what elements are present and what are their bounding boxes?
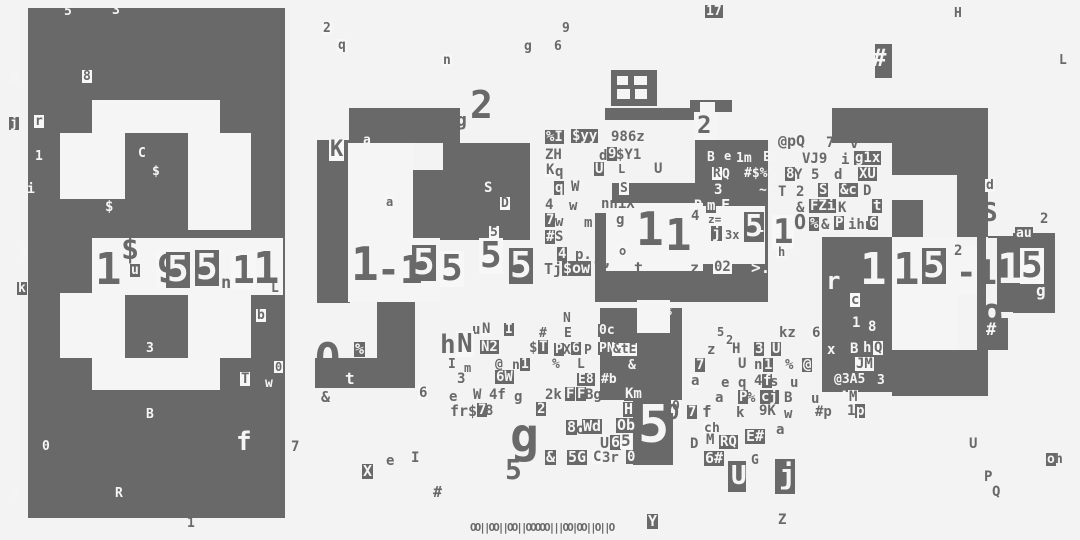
glyph: $Y1 xyxy=(616,148,641,162)
glyph: 1 xyxy=(636,206,664,252)
glyph: 4, xyxy=(594,254,612,269)
glyph: 9 xyxy=(562,22,570,35)
glyph: $ xyxy=(105,200,113,214)
glyph: 6 xyxy=(571,342,581,355)
glitch-art-canvas: 532qng9617#HLB8jr1i8kuC$$3b0TwB0fR711$u9… xyxy=(0,0,1080,540)
glyph: #$%5 xyxy=(744,167,775,180)
gray-block xyxy=(377,302,415,358)
glyph: L xyxy=(1059,54,1067,67)
glyph: % xyxy=(664,305,672,318)
glyph: e xyxy=(721,376,729,390)
glyph: K xyxy=(838,201,846,215)
glyph: t xyxy=(634,261,643,276)
glyph: U xyxy=(771,342,781,356)
glyph: O xyxy=(794,212,806,232)
glyph: %I xyxy=(545,130,564,144)
glyph: U xyxy=(600,436,609,451)
glyph: H xyxy=(623,402,634,417)
glyph: Q xyxy=(873,341,883,355)
window-icon-pane xyxy=(634,76,647,85)
glyph: q xyxy=(555,165,563,179)
glyph: 6 xyxy=(418,386,428,400)
glyph: P xyxy=(984,470,992,484)
glyph: W xyxy=(473,388,481,402)
glyph: 2 xyxy=(1040,212,1048,226)
gray-block xyxy=(317,140,350,303)
glyph: r xyxy=(826,269,840,293)
glyph: RQ xyxy=(719,435,738,449)
glyph: U xyxy=(969,437,977,451)
glyph: d xyxy=(985,179,995,192)
white-cutout xyxy=(60,133,125,199)
white-cutout xyxy=(348,143,413,238)
glyph: a xyxy=(385,196,394,208)
glyph: 5 xyxy=(479,238,503,274)
glyph: g xyxy=(514,390,522,404)
glyph: k xyxy=(17,282,27,295)
glyph: Q xyxy=(722,168,730,181)
glyph: B xyxy=(11,72,19,85)
glyph: B xyxy=(146,408,154,421)
glyph: u xyxy=(11,487,19,500)
glyph: I xyxy=(448,358,456,371)
glyph: N xyxy=(456,331,474,357)
glyph: 1 xyxy=(860,248,887,292)
glyph: 02 xyxy=(713,260,732,274)
glyph: I xyxy=(504,323,514,336)
glyph: % xyxy=(354,342,365,357)
glyph: 1 xyxy=(763,358,773,372)
glyph: R xyxy=(115,487,123,500)
glyph: au xyxy=(1015,227,1033,240)
glyph: w xyxy=(265,377,273,390)
glyph: 3r xyxy=(602,451,619,465)
glyph: g xyxy=(615,213,625,227)
glyph: 7 xyxy=(826,136,834,150)
window-icon-pane xyxy=(617,76,628,85)
glyph: E xyxy=(763,151,771,164)
glyph: 5 xyxy=(412,245,436,281)
glyph: m xyxy=(584,216,592,230)
glyph: 8 xyxy=(485,404,493,418)
glyph: T xyxy=(240,372,250,386)
glyph: 2 xyxy=(470,86,493,124)
glyph: S xyxy=(555,230,563,244)
glyph: H xyxy=(732,342,740,356)
glyph: O xyxy=(667,402,679,422)
barcode: OO||OO||OO||OOOOO|||OO|OO||O||O xyxy=(470,522,613,533)
white-cutout xyxy=(188,133,251,230)
glyph: 5 xyxy=(922,248,946,284)
glyph: $ xyxy=(152,165,160,178)
glyph: nniX xyxy=(601,197,635,211)
glyph: F xyxy=(565,387,575,401)
glyph: c xyxy=(850,293,860,307)
glyph: R xyxy=(694,199,702,213)
glyph: ZH xyxy=(545,148,562,162)
glyph: 1 xyxy=(852,316,860,330)
glyph: S xyxy=(982,200,998,226)
glyph: 3 xyxy=(457,372,465,386)
glyph: T xyxy=(778,185,786,199)
glyph: & xyxy=(545,450,556,465)
glyph: 2 xyxy=(322,22,332,35)
glyph: g xyxy=(456,112,467,130)
glyph: 5 xyxy=(1020,248,1044,284)
glyph: L xyxy=(577,358,585,371)
glyph: d xyxy=(834,168,842,182)
glyph: 1 xyxy=(35,150,43,163)
glyph: C xyxy=(138,147,146,160)
glyph: 3x xyxy=(725,229,739,241)
glyph: 0 xyxy=(42,440,50,453)
glyph: 5 xyxy=(166,252,190,288)
glyph: 5 xyxy=(620,433,632,449)
gray-block xyxy=(892,143,958,175)
glyph: 0c xyxy=(598,324,616,337)
glyph: $ xyxy=(529,341,537,355)
glyph: 6# xyxy=(704,451,724,466)
glyph: L xyxy=(618,163,625,175)
glyph: E xyxy=(564,327,572,340)
glyph: #b xyxy=(600,373,618,386)
glyph: f xyxy=(236,429,252,455)
glyph: #p xyxy=(815,405,832,419)
glyph: 7 xyxy=(695,358,705,372)
glyph: >. xyxy=(751,260,770,276)
glyph: # xyxy=(433,485,442,500)
window-icon-pane xyxy=(617,89,630,99)
glyph: 6W xyxy=(495,370,514,384)
glyph: E# xyxy=(745,429,765,444)
glyph: k xyxy=(736,406,744,420)
glyph: 1 xyxy=(997,248,1022,290)
glyph: B xyxy=(850,342,858,356)
glyph: j xyxy=(9,117,19,130)
glyph: j xyxy=(779,461,796,489)
glyph: M xyxy=(848,390,858,404)
glyph: z xyxy=(690,261,699,276)
glyph: 1 xyxy=(772,215,794,249)
glyph: N xyxy=(563,312,571,325)
glyph: 5 xyxy=(505,456,522,484)
glyph: s xyxy=(770,375,778,389)
glyph: j xyxy=(711,226,722,241)
glyph: 5 xyxy=(64,5,72,18)
glyph: 1 xyxy=(351,241,379,287)
glyph: 1 xyxy=(665,214,692,258)
glyph: r xyxy=(34,115,44,128)
glyph: 3 xyxy=(714,183,722,197)
glyph: 1 xyxy=(187,517,195,530)
glyph: -1 xyxy=(956,256,997,290)
glyph: B xyxy=(784,391,792,405)
gray-block xyxy=(892,350,988,396)
glyph: ~r xyxy=(759,184,775,197)
white-cutout xyxy=(92,100,220,133)
glyph: f xyxy=(702,404,712,420)
glyph: Z xyxy=(778,513,786,527)
white-cutout xyxy=(188,295,251,358)
glyph: 8 xyxy=(82,70,92,83)
glyph: 1m xyxy=(736,152,752,165)
glyph: % xyxy=(785,358,793,372)
glyph: a xyxy=(690,374,700,388)
glyph: w xyxy=(784,407,792,421)
glyph: o xyxy=(618,245,627,257)
glyph: i xyxy=(27,183,35,196)
glyph: U xyxy=(654,162,662,176)
glyph: Bg xyxy=(585,388,602,402)
glyph: X xyxy=(563,344,571,357)
white-cutout xyxy=(92,358,220,390)
glyph: 1 xyxy=(520,358,530,371)
glyph: w xyxy=(555,215,563,229)
glyph: XU xyxy=(858,167,877,181)
glyph: 5 xyxy=(509,248,533,284)
glyph: % xyxy=(747,391,755,405)
glyph: 986z xyxy=(611,130,645,144)
glyph: Q xyxy=(315,338,340,380)
glyph: 0 xyxy=(626,450,636,464)
glyph: 5 xyxy=(811,168,819,182)
glyph: o xyxy=(823,359,831,373)
glyph: t xyxy=(872,199,882,213)
glyph: fr$ xyxy=(450,404,477,419)
glyph: 5 xyxy=(717,326,724,338)
glyph: - xyxy=(757,224,765,238)
glyph: 3 xyxy=(877,374,885,387)
glyph: 2 xyxy=(697,113,711,137)
glyph: a xyxy=(715,391,723,405)
glyph: Wd xyxy=(582,419,602,434)
glyph: cj xyxy=(760,390,779,404)
glyph: # xyxy=(986,322,996,339)
glyph: z xyxy=(707,343,715,357)
glyph: g1x xyxy=(854,151,881,165)
glyph: n xyxy=(754,358,762,372)
glyph: a xyxy=(776,423,784,437)
glyph: p xyxy=(855,404,865,418)
glyph: e xyxy=(723,150,732,162)
glyph: 4 xyxy=(545,198,553,212)
glyph: h xyxy=(777,246,786,258)
glyph: 9K xyxy=(759,404,776,418)
glyph: kz xyxy=(779,326,796,340)
glyph: L xyxy=(271,282,279,295)
glyph: 1 xyxy=(893,248,920,292)
glyph: 5 xyxy=(638,399,669,451)
glyph: &tE xyxy=(612,343,637,356)
glyph: 6 xyxy=(554,40,562,53)
glyph: VJ9 xyxy=(802,152,827,166)
glyph: 3 xyxy=(754,342,764,356)
glyph: FZi xyxy=(809,199,836,213)
glyph: D xyxy=(500,197,510,210)
glyph: C xyxy=(592,450,602,464)
glyph: N2 xyxy=(480,340,499,354)
glyph: $ xyxy=(121,235,139,265)
glyph: S xyxy=(484,181,492,195)
glyph: R xyxy=(712,167,722,180)
glyph: 7 xyxy=(291,440,299,454)
glyph: a xyxy=(363,134,371,147)
glyph: 6 xyxy=(811,326,821,340)
glyph: &c xyxy=(839,183,858,197)
glyph: n xyxy=(442,54,452,67)
glyph: N xyxy=(481,322,491,336)
glyph: t xyxy=(345,371,355,387)
glyph: G xyxy=(751,454,759,467)
glyph: 5 xyxy=(195,250,219,286)
glyph: v xyxy=(850,137,858,151)
glyph: P xyxy=(584,344,592,357)
glyph: Q xyxy=(992,485,1000,499)
glyph: S xyxy=(818,183,828,197)
glyph: W xyxy=(571,180,579,194)
glyph: @ xyxy=(802,358,812,372)
glyph: U xyxy=(731,463,747,489)
white-cutout xyxy=(92,295,125,358)
glyph: 2 xyxy=(796,185,804,199)
glyph: 1 xyxy=(95,248,122,292)
glyph: 7 xyxy=(687,405,697,419)
glyph: m xyxy=(706,199,716,213)
glyph: 7 xyxy=(545,213,555,227)
glyph: 6 xyxy=(868,216,878,230)
glyph: I xyxy=(411,451,419,465)
glyph: 5G xyxy=(567,450,587,465)
glyph: u xyxy=(130,264,140,277)
glyph: q xyxy=(738,376,746,390)
glyph: # xyxy=(545,230,555,244)
glyph: g xyxy=(524,40,532,53)
glyph: g xyxy=(1036,283,1046,299)
glyph: 17 xyxy=(705,5,723,18)
glyph: u xyxy=(790,376,798,390)
glyph: i xyxy=(841,153,849,167)
glyph: h xyxy=(863,341,871,355)
glyph: b xyxy=(256,309,266,322)
glyph: q xyxy=(337,39,347,52)
glyph: h xyxy=(440,332,456,358)
glyph: B xyxy=(707,151,715,164)
glyph: U xyxy=(594,162,604,176)
glyph: Y xyxy=(647,514,658,529)
gray-block xyxy=(595,271,705,302)
glyph: E8 xyxy=(577,373,595,386)
glyph: & xyxy=(321,390,330,405)
glyph: 3 xyxy=(146,342,154,355)
glyph: 4f xyxy=(489,388,506,402)
gray-block xyxy=(413,170,443,240)
glyph: 8 xyxy=(868,320,876,334)
glyph: 3 xyxy=(112,4,120,17)
glyph: % xyxy=(809,217,819,231)
glyph: 2k xyxy=(545,388,562,402)
glyph: 5 xyxy=(440,251,464,287)
glyph: e xyxy=(386,454,394,468)
glyph: h xyxy=(1055,453,1063,466)
glyph: w xyxy=(569,199,577,213)
glyph: D xyxy=(690,437,698,451)
glyph: U xyxy=(738,357,746,371)
glyph: M xyxy=(706,433,714,447)
glyph: K xyxy=(329,139,344,161)
glyph: 0 xyxy=(274,361,283,373)
glyph: Tj xyxy=(544,262,562,277)
glyph: q xyxy=(554,181,564,195)
glyph: & xyxy=(628,359,636,372)
glyph: S xyxy=(619,182,629,195)
glyph: H xyxy=(954,7,962,20)
glyph: $ow xyxy=(562,261,591,276)
window-icon-pane xyxy=(635,89,647,99)
glyph: JM xyxy=(855,357,874,371)
glyph: P xyxy=(834,216,844,230)
glyph: & xyxy=(821,218,829,232)
glyph: Y xyxy=(794,168,802,182)
glyph: @pQ xyxy=(778,134,805,149)
glyph: $yy xyxy=(571,129,598,143)
glyph: @3A5 xyxy=(833,373,866,386)
glyph: D xyxy=(863,184,871,198)
glyph: % xyxy=(552,358,560,371)
glyph: X xyxy=(362,464,373,479)
glyph: 8 xyxy=(19,247,27,260)
glyph: n xyxy=(221,275,231,292)
gray-block xyxy=(892,200,923,237)
gray-block xyxy=(988,236,1018,238)
glyph: K xyxy=(545,163,555,177)
glyph: # xyxy=(872,46,886,70)
glyph: x xyxy=(827,343,835,357)
glyph: T xyxy=(538,340,548,354)
glyph: F xyxy=(721,198,730,213)
